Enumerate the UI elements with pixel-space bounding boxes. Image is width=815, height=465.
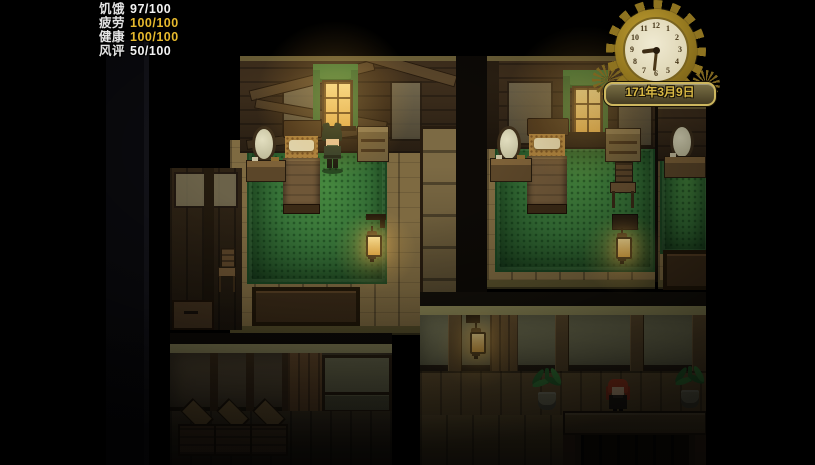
hall-hanging-lantern <box>468 323 484 361</box>
room2-vanity-desk <box>490 158 532 182</box>
chair-leg <box>233 276 235 292</box>
wall-pillar <box>448 315 462 371</box>
stat-value: 50/100 <box>130 45 171 58</box>
wooden-crate <box>211 398 251 454</box>
clock-center-pin <box>653 47 660 54</box>
clock-numeral: 3 <box>674 45 686 55</box>
character-shadow <box>322 168 343 174</box>
date-plaque: 171年3月9日 <box>604 82 716 106</box>
stat-row-hunger: 饥饿 97/100 <box>99 3 179 16</box>
bed-blanket <box>527 156 567 206</box>
room2-bed[interactable] <box>527 132 567 214</box>
npc-face <box>612 387 624 395</box>
stat-value: 100/100 <box>130 31 179 44</box>
plant-pot <box>681 390 699 408</box>
chair-leg <box>219 276 221 292</box>
corridor-gap <box>420 292 708 306</box>
room2-hanging-lantern <box>614 228 630 266</box>
bed-blanket <box>283 158 320 206</box>
room1-vanity-desk <box>246 160 286 182</box>
hall-lower-wall <box>420 371 708 415</box>
room1-nightstand <box>357 126 389 162</box>
nightstand-drawer <box>609 141 637 144</box>
chair-leg <box>612 191 615 208</box>
stat-row-fatigue: 疲劳 100/100 <box>99 17 179 30</box>
wooden-crate <box>247 398 287 454</box>
stat-row-reputation: 风评 50/100 <box>99 45 179 58</box>
map-edge-strip <box>106 40 144 465</box>
map-edge-strip-line <box>144 40 149 465</box>
counter-recess <box>581 435 689 465</box>
clock-numeral: 7 <box>638 66 650 76</box>
game-screen[interactable]: 12 1 2 3 4 5 6 7 8 9 10 11 171年3月9日 饥饿 9… <box>0 0 815 465</box>
desk-item <box>517 155 525 159</box>
room3-vanity-desk <box>664 156 706 178</box>
counter-post <box>563 431 575 465</box>
desk-top <box>665 157 705 163</box>
nightstand-drawer <box>361 139 385 142</box>
stat-value: 100/100 <box>130 17 179 30</box>
bed-pillow <box>289 140 313 151</box>
player-leg <box>333 159 338 168</box>
chair-leg <box>631 191 634 208</box>
desk-top <box>491 159 531 165</box>
window-bar <box>325 392 389 395</box>
nightstand-top <box>358 127 388 132</box>
lantern-glass <box>616 237 632 259</box>
wooden-crate <box>175 398 215 454</box>
room2-chair <box>608 162 638 208</box>
room1-bed[interactable] <box>283 134 320 214</box>
desk-item <box>496 155 502 159</box>
nightstand-drawer <box>361 149 385 152</box>
bed-pillow <box>534 138 560 149</box>
wall-pillar <box>630 315 644 371</box>
stat-row-health: 健康 100/100 <box>99 31 179 44</box>
npc-collar <box>613 395 623 398</box>
lantern-glass <box>470 332 486 354</box>
chair-back <box>221 248 235 269</box>
lantern-finial <box>474 356 478 359</box>
desk-top <box>247 161 285 167</box>
chair-back <box>615 162 634 184</box>
clock-numeral: 6 <box>650 69 662 79</box>
map-void <box>706 0 815 465</box>
desk-item <box>670 153 676 157</box>
plant-pot <box>538 392 556 410</box>
desk-item <box>252 157 258 161</box>
clock-numeral: 5 <box>662 66 674 76</box>
hall-upper-wall <box>420 315 708 371</box>
wall-wood-section <box>490 315 518 371</box>
drawer-handle <box>184 311 198 314</box>
window-panes <box>572 86 603 136</box>
clock-numeral: 10 <box>629 33 641 43</box>
stat-label: 风评 <box>99 45 125 58</box>
lantern-mount <box>466 315 480 323</box>
wall-wood-section <box>288 353 322 411</box>
room2-bottom-beam <box>487 280 655 289</box>
clock-numeral: 2 <box>671 33 683 43</box>
desk-item <box>271 157 279 161</box>
player-leg <box>327 159 332 168</box>
corridor-gap <box>170 333 392 344</box>
bed-footboard <box>283 204 320 214</box>
nightstand-drawer <box>609 151 637 154</box>
nightstand-top <box>606 129 640 134</box>
room2-nightstand <box>605 128 641 162</box>
potted-plant-left <box>530 362 564 414</box>
reception-counter[interactable] <box>563 411 707 465</box>
room1-chair <box>216 248 238 292</box>
stat-label: 饥饿 <box>99 3 125 16</box>
mirror-glass <box>500 129 518 159</box>
player-belt <box>324 155 341 158</box>
lantern-bracket <box>380 214 385 228</box>
lantern-finial <box>620 261 624 264</box>
storage-window <box>322 355 392 413</box>
mirror-glass <box>255 129 273 159</box>
lantern-finial <box>370 259 374 262</box>
clock-numeral: 9 <box>626 45 638 55</box>
clock-numeral: 11 <box>638 24 650 34</box>
bed-footboard <box>527 204 567 214</box>
player-character[interactable] <box>320 126 345 174</box>
crate-front <box>250 424 288 456</box>
stat-value: 97/100 <box>130 3 171 16</box>
room1-hanging-lantern <box>364 226 380 264</box>
clock-numeral: 8 <box>629 57 641 67</box>
counter-top <box>563 411 707 435</box>
wall-separator <box>456 56 487 292</box>
potted-plant-right <box>673 360 707 412</box>
clock-face: 12 1 2 3 4 5 6 7 8 9 10 11 <box>623 17 689 83</box>
stat-label: 健康 <box>99 31 125 44</box>
clock-numeral: 12 <box>650 21 662 31</box>
status-hud: 饥饿 97/100 疲劳 100/100 健康 100/100 风评 50/10… <box>99 3 179 58</box>
room1-small-drawer <box>172 300 214 330</box>
lantern-glass <box>366 235 382 257</box>
stat-label: 疲劳 <box>99 17 125 30</box>
room1-table <box>252 287 360 326</box>
window-sill <box>565 132 606 137</box>
